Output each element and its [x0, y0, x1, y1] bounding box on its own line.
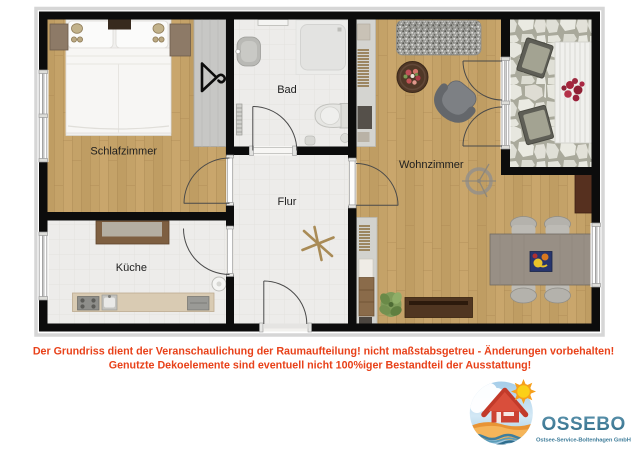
- svg-text:Ostsee-Service-Boltenhagen Gmb: Ostsee-Service-Boltenhagen GmbH: [536, 438, 631, 444]
- svg-text:Küche: Küche: [116, 262, 147, 274]
- svg-text:Genutzte Dekoelemente sind eve: Genutzte Dekoelemente sind eventuell nic…: [109, 360, 531, 372]
- svg-text:Schlafzimmer: Schlafzimmer: [90, 145, 157, 157]
- svg-text:Wohnzimmer: Wohnzimmer: [399, 159, 464, 171]
- svg-text:Der Grundriss dient der Verans: Der Grundriss dient der Veranschaulichun…: [33, 345, 614, 358]
- svg-text:OSSEBO: OSSEBO: [542, 414, 626, 435]
- svg-text:Flur: Flur: [278, 196, 297, 208]
- svg-text:Bad: Bad: [277, 84, 297, 96]
